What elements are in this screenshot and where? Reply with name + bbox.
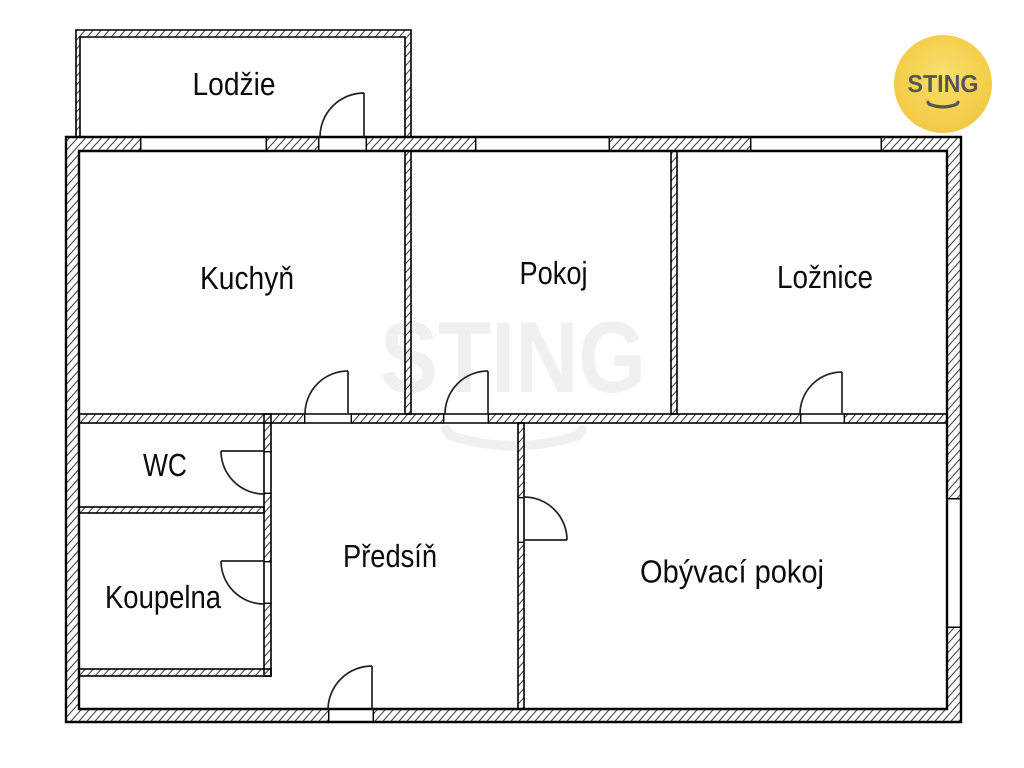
svg-text:Obývací pokoj: Obývací pokoj xyxy=(640,554,824,590)
svg-text:Koupelna: Koupelna xyxy=(105,579,221,615)
svg-text:STING: STING xyxy=(908,71,979,98)
svg-text:WC: WC xyxy=(143,447,187,483)
svg-text:Lodžie: Lodžie xyxy=(193,66,276,102)
svg-text:Předsíň: Předsíň xyxy=(343,538,437,574)
svg-text:Pokoj: Pokoj xyxy=(520,255,588,291)
svg-text:Ložnice: Ložnice xyxy=(777,259,873,295)
svg-text:STING: STING xyxy=(380,302,646,414)
svg-text:Kuchyň: Kuchyň xyxy=(200,260,294,296)
